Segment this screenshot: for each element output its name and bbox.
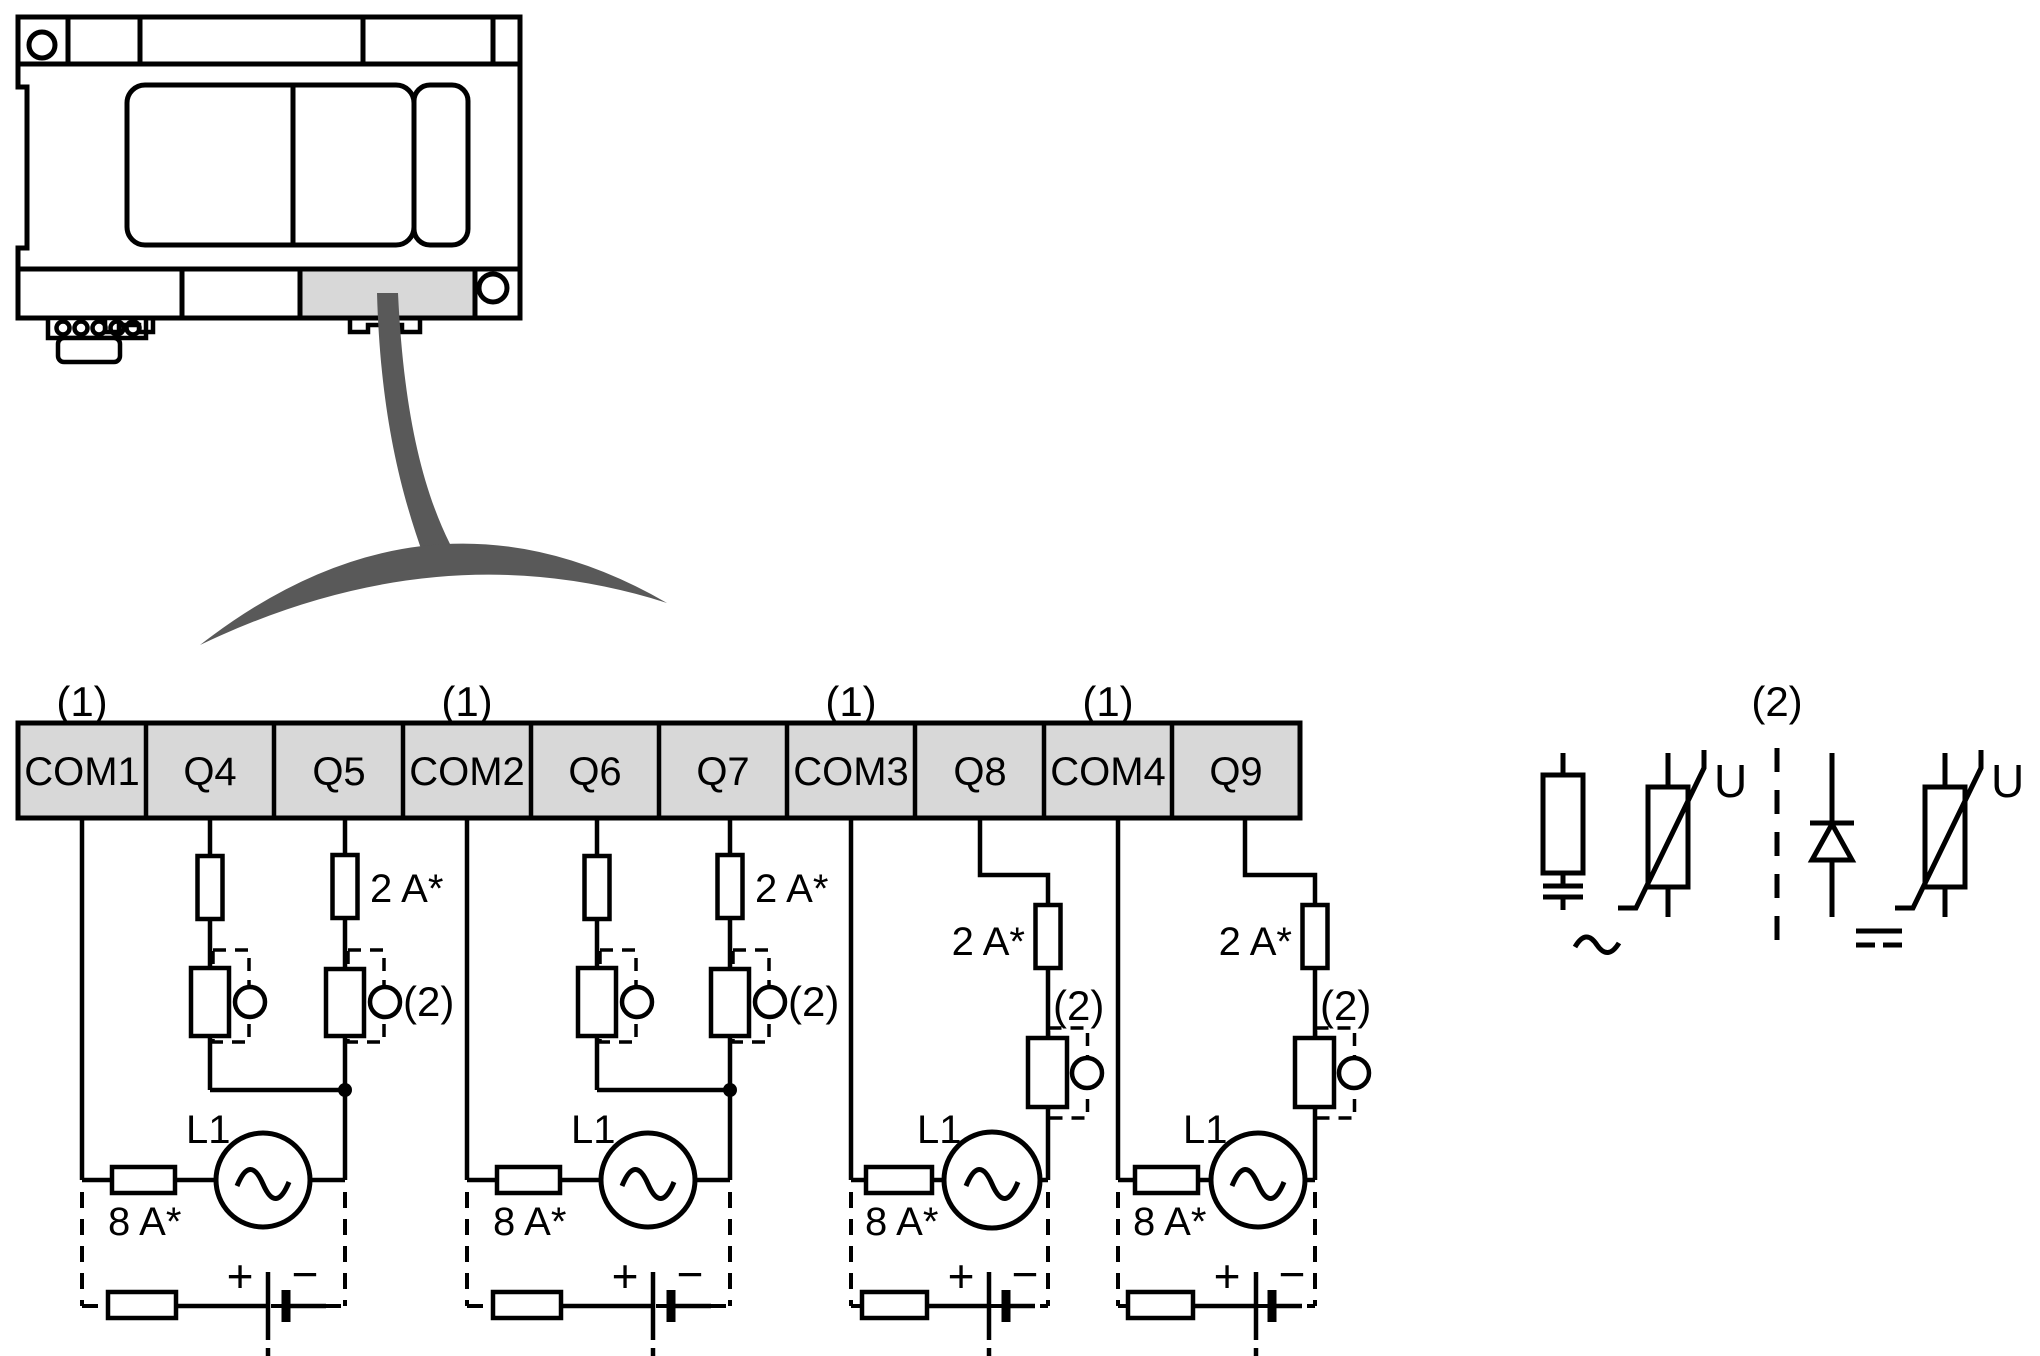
q8-suppressor-circle bbox=[1072, 1058, 1102, 1088]
note1-com4: (1) bbox=[1082, 678, 1133, 725]
q4-fuse-icon bbox=[198, 856, 223, 919]
terminal-label-q4: Q4 bbox=[183, 750, 236, 794]
terminal-label-com2: COM2 bbox=[409, 750, 525, 794]
q7-suppressor-circle bbox=[755, 987, 785, 1017]
q5-load-box bbox=[326, 969, 364, 1036]
q9-suppressor-circle bbox=[1339, 1058, 1369, 1088]
terminal-label-q8: Q8 bbox=[953, 750, 1006, 794]
note1-com3: (1) bbox=[825, 678, 876, 725]
group2-minus-label: − bbox=[677, 1248, 704, 1300]
group2-junction-dot bbox=[723, 1083, 737, 1097]
output-group-4: 2 A* (2) 8 A* L1 + − bbox=[1118, 818, 1371, 1356]
terminal-strip: COM1 Q4 Q5 COM2 Q6 Q7 COM3 Q8 COM4 Q9 (1… bbox=[18, 678, 1300, 818]
group1-minus-label: − bbox=[292, 1248, 319, 1300]
group3-8a-fuse-icon bbox=[866, 1167, 932, 1193]
group4-8a-fuse-icon bbox=[1135, 1167, 1198, 1193]
group2-8a-fuse-icon bbox=[497, 1167, 560, 1193]
q6-suppressor-circle bbox=[622, 987, 652, 1017]
plc-device bbox=[18, 17, 520, 362]
terminal-label-q6: Q6 bbox=[568, 750, 621, 794]
terminal-label-com3: COM3 bbox=[793, 750, 909, 794]
group3-8a-label: 8 A* bbox=[865, 1200, 938, 1244]
legend-varistor-ac: U bbox=[1618, 750, 1747, 917]
q6-fuse-icon bbox=[585, 856, 610, 919]
q6-load-box bbox=[578, 968, 616, 1036]
group2-8a-label: 8 A* bbox=[493, 1200, 566, 1244]
group2-bottom-fuse-icon bbox=[493, 1292, 561, 1318]
group4-minus-label: − bbox=[1279, 1248, 1306, 1300]
group4-plus-label: + bbox=[1214, 1250, 1241, 1302]
q7-load-box bbox=[711, 969, 749, 1036]
q8-fuse-icon bbox=[1036, 905, 1061, 968]
terminal-label-com1: COM1 bbox=[24, 750, 140, 794]
group4-lamp-label: L1 bbox=[1183, 1108, 1228, 1152]
terminal-label-com4: COM4 bbox=[1050, 750, 1166, 794]
wiring-diagram: COM1 Q4 Q5 COM2 Q6 Q7 COM3 Q8 COM4 Q9 (1… bbox=[0, 0, 2040, 1356]
q8-fuse-label: 2 A* bbox=[952, 920, 1025, 964]
group4-note2: (2) bbox=[1320, 982, 1371, 1029]
terminal-label-q7: Q7 bbox=[696, 750, 749, 794]
group2-plus-label: + bbox=[612, 1250, 639, 1302]
group1-plus-label: + bbox=[227, 1250, 254, 1302]
q4-load-box bbox=[191, 968, 229, 1036]
q4-suppressor-circle bbox=[235, 987, 265, 1017]
device-screw-bottom-icon bbox=[479, 274, 507, 302]
diode-triangle bbox=[1812, 824, 1852, 860]
q7-fuse-icon bbox=[718, 855, 743, 918]
group2-note2: (2) bbox=[788, 978, 839, 1025]
q8-wire bbox=[980, 818, 1048, 1180]
output-group-3: 2 A* (2) 8 A* L1 + − bbox=[851, 818, 1104, 1356]
q5-fuse-icon bbox=[333, 855, 358, 918]
device-screw-top-icon bbox=[29, 32, 55, 58]
note1-com2: (1) bbox=[441, 678, 492, 725]
diagram-canvas: COM1 Q4 Q5 COM2 Q6 Q7 COM3 Q8 COM4 Q9 (1… bbox=[0, 0, 2040, 1356]
group1-8a-label: 8 A* bbox=[108, 1200, 181, 1244]
q9-fuse-icon bbox=[1303, 905, 1328, 968]
device-side-panel bbox=[414, 85, 468, 245]
zoom-callout-arrow-icon bbox=[200, 293, 667, 645]
output-group-2: 2 A* (2) 8 A* L1 + − bbox=[467, 818, 839, 1356]
group4-bottom-fuse-icon bbox=[1128, 1292, 1193, 1318]
q8-load-box bbox=[1028, 1038, 1067, 1107]
legend-ac-symbol-icon bbox=[1575, 937, 1619, 953]
legend-rc-snubber bbox=[1543, 753, 1583, 910]
voltage-label-ac: U bbox=[1714, 755, 1747, 807]
group3-note2: (2) bbox=[1053, 982, 1104, 1029]
q9-fuse-label: 2 A* bbox=[1219, 920, 1292, 964]
group3-minus-label: − bbox=[1012, 1248, 1039, 1300]
q5-fuse-label: 2 A* bbox=[370, 867, 443, 911]
q9-wire bbox=[1245, 818, 1315, 1180]
device-display-area bbox=[127, 85, 414, 245]
legend-varistor-dc: U bbox=[1895, 750, 2024, 917]
q7-fuse-label: 2 A* bbox=[755, 867, 828, 911]
group3-bottom-fuse-icon bbox=[862, 1292, 927, 1318]
group1-bottom-fuse-icon bbox=[108, 1292, 176, 1318]
rc-resistor-box bbox=[1543, 775, 1583, 873]
legend-protection: (2) U bbox=[1543, 678, 2024, 953]
q9-load-box bbox=[1295, 1038, 1334, 1107]
group3-plus-label: + bbox=[948, 1250, 975, 1302]
group2-lamp-label: L1 bbox=[571, 1108, 616, 1152]
group4-8a-label: 8 A* bbox=[1133, 1200, 1206, 1244]
q5-suppressor-circle bbox=[370, 987, 400, 1017]
output-group-1: 2 A* (2) 8 A* L1 + − bbox=[82, 818, 454, 1356]
group1-note2: (2) bbox=[403, 978, 454, 1025]
group3-lamp-label: L1 bbox=[917, 1108, 962, 1152]
note1-com1: (1) bbox=[56, 678, 107, 725]
legend-dc-symbol-icon bbox=[1856, 931, 1902, 945]
terminal-label-q9: Q9 bbox=[1209, 750, 1262, 794]
terminal-label-q5: Q5 bbox=[312, 750, 365, 794]
group1-8a-fuse-icon bbox=[112, 1167, 175, 1193]
legend-title: (2) bbox=[1751, 678, 1802, 725]
group1-junction-dot bbox=[338, 1083, 352, 1097]
group1-lamp-label: L1 bbox=[186, 1108, 231, 1152]
voltage-label-dc: U bbox=[1991, 755, 2024, 807]
legend-diode bbox=[1810, 753, 1854, 917]
